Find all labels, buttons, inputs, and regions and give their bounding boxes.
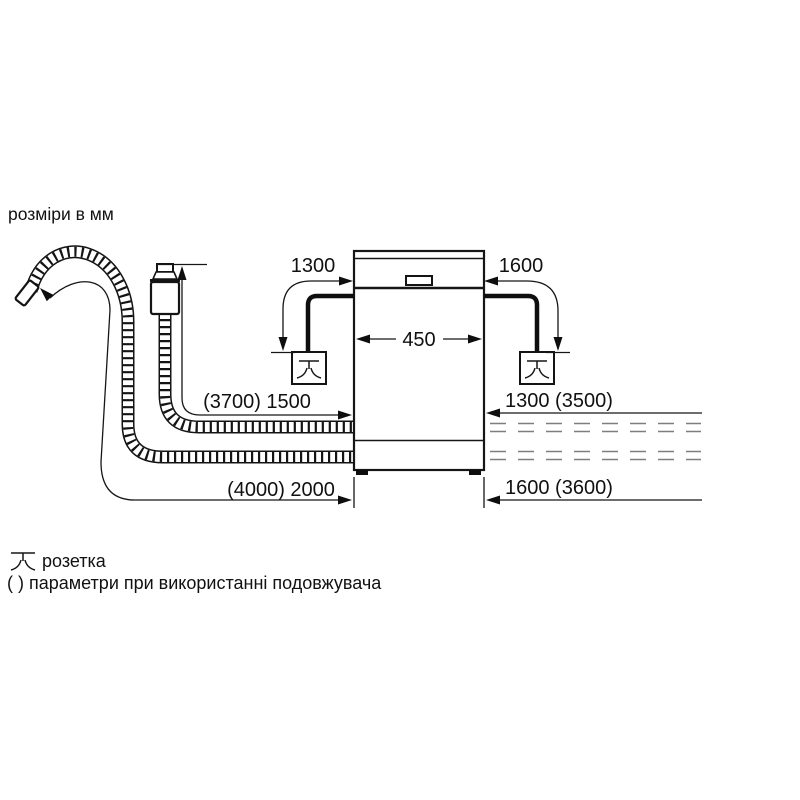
drain-hose-right-label: 1600 (3600): [505, 477, 613, 499]
legend: розетка ( ) параметри при використанні п…: [7, 551, 382, 593]
drain-hose-end-cap: [15, 280, 39, 306]
dashed-hose-right: [490, 424, 701, 460]
drain-hose-left-label: (4000) 2000: [227, 479, 335, 501]
dimension-inlet-hose-left: (3700) 1500: [156, 265, 352, 420]
socket-icon-left: [292, 352, 326, 384]
appliance-width-label: 450: [402, 329, 435, 351]
dimension-right-cord: 1600: [484, 255, 570, 353]
dimension-inlet-hose-right: 1300 (3500): [486, 390, 702, 418]
door-handle: [406, 276, 432, 285]
tap-connector: [150, 264, 180, 314]
right-cord-label: 1600: [499, 255, 544, 277]
left-cord-label: 1300: [291, 255, 336, 277]
right-foot: [469, 470, 481, 475]
installation-diagram-page: розміри в мм 450: [0, 0, 800, 800]
inlet-hose-right-label: 1300 (3500): [505, 390, 613, 412]
left-foot: [356, 470, 368, 475]
legend-parentheses-note: ( ) параметри при використанні подовжува…: [7, 573, 382, 593]
page-title: розміри в мм: [8, 204, 114, 224]
power-cable-left: [308, 296, 354, 352]
dimension-drain-hose-right: 1600 (3600): [486, 477, 702, 505]
inlet-hose-left-label: (3700) 1500: [203, 391, 311, 413]
power-cable-right: [484, 296, 537, 352]
socket-icon-right: [520, 352, 554, 384]
dishwasher-outline: [354, 251, 484, 475]
dimension-left-cord: 1300: [271, 255, 353, 353]
dishwasher-installation-diagram: розміри в мм 450: [0, 0, 800, 800]
legend-socket-label: розетка: [42, 551, 107, 571]
legend-socket-icon: [11, 553, 35, 570]
